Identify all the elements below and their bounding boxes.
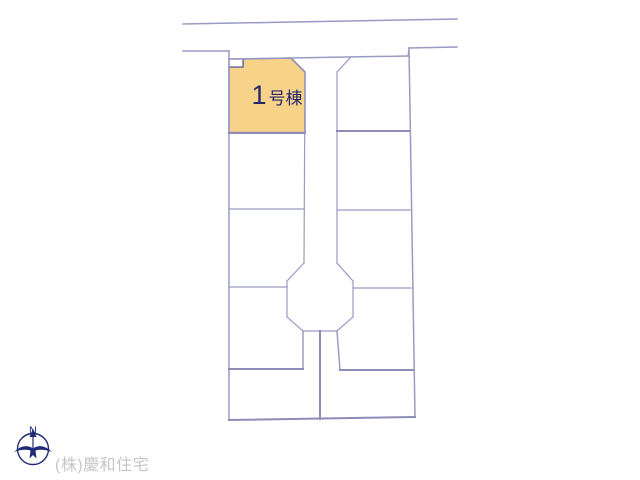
octagon-bottom-left-diagonal: [287, 317, 303, 331]
north-compass-icon: N: [14, 425, 52, 465]
right-lot-divisions: [337, 131, 413, 370]
compass-north-label: N: [29, 425, 37, 437]
left-lot-divisions: [229, 133, 305, 369]
plot-1-suffix: 号棟: [269, 90, 303, 107]
company-watermark: (株)慶和住宅: [55, 451, 149, 475]
boundary-right: [409, 48, 415, 417]
plot-1-corner-notch: [229, 59, 243, 67]
right-plot-corner-bevel: [337, 57, 351, 72]
top-road-upper-edge: [183, 19, 457, 24]
subdivision-drawing: N: [0, 0, 640, 480]
octagon-top-left-diagonal: [287, 263, 304, 281]
top-road: [183, 19, 457, 59]
octagon-top-right-diagonal: [337, 263, 353, 281]
octagon-bottom-right-diagonal: [337, 317, 353, 331]
turnaround-octagon: [287, 263, 353, 331]
lower-road-right-edge: [337, 331, 340, 370]
boundary-bottom: [229, 417, 415, 420]
top-road-lower-edge-right: [409, 47, 457, 48]
top-road-lower-edge-mid: [229, 56, 408, 59]
plot-1-label: 1 号棟: [240, 82, 314, 116]
site-plan-map: N 1 号棟 (株)慶和住宅: [0, 0, 640, 480]
lower-road: [303, 331, 340, 419]
plot-1-number: 1: [251, 82, 266, 109]
